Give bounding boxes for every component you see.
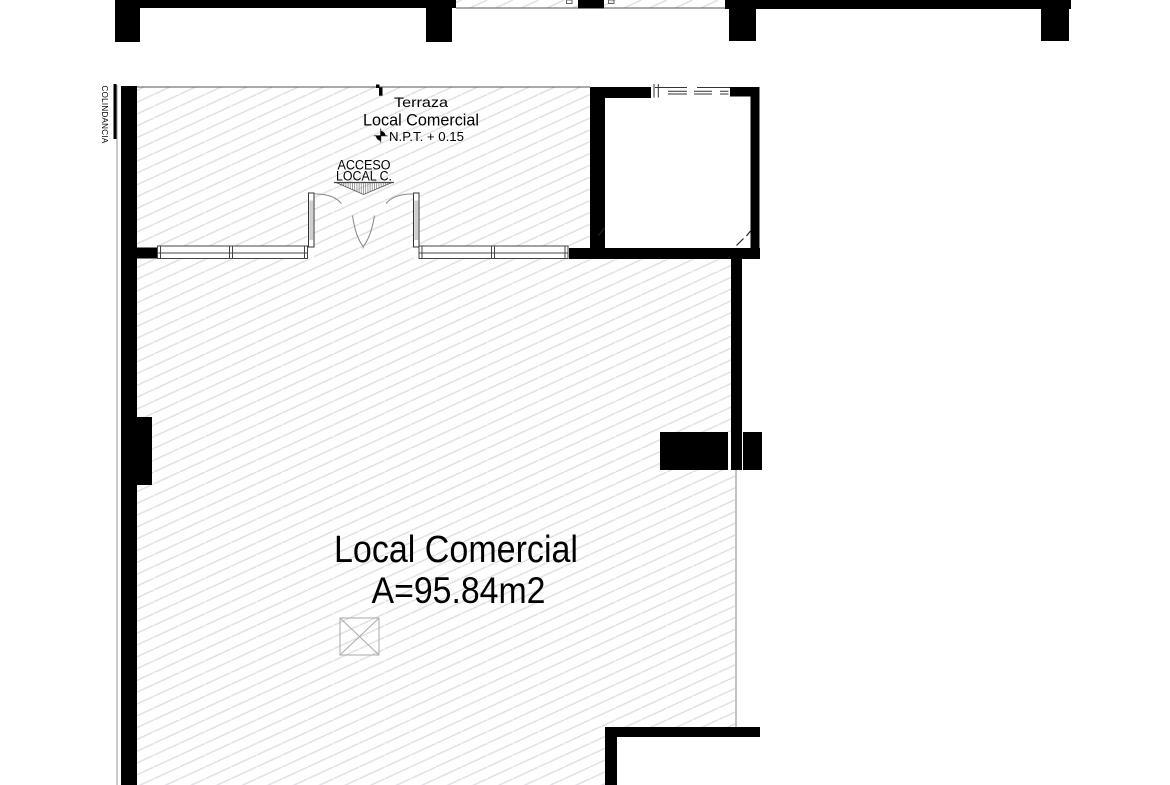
svg-text:A=95.84m2: A=95.84m2 [372, 570, 546, 611]
svg-text:Local Comercial: Local Comercial [334, 529, 578, 571]
svg-text:Local Comercial: Local Comercial [363, 111, 479, 130]
svg-text:LOCAL C.: LOCAL C. [336, 169, 392, 184]
svg-text:COLINDANCIA: COLINDANCIA [100, 86, 109, 144]
svg-text:N.P.T. + 0.15: N.P.T. + 0.15 [389, 129, 464, 144]
svg-text:Terraza: Terraza [394, 94, 448, 110]
